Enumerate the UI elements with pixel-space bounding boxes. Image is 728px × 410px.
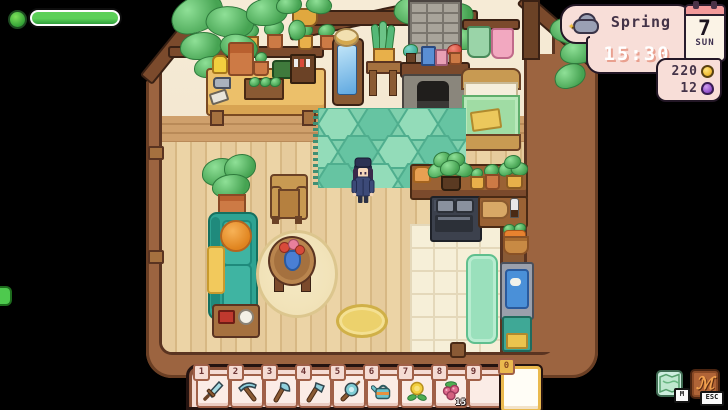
fishing-rod-icon <box>337 379 361 403</box>
slot-key-tab: 9 <box>465 364 482 381</box>
red-book <box>218 310 235 324</box>
book-on-bed <box>470 108 502 132</box>
gold-row: 220 <box>672 64 714 79</box>
calendar-pin <box>693 1 699 9</box>
stacked-clay-pots <box>228 42 254 76</box>
map-key-label: M <box>674 388 690 403</box>
slot-key-tab: 8 <box>431 364 448 381</box>
mantel-plant <box>403 44 417 62</box>
gold-amount: 220 <box>672 64 698 79</box>
slot-key-tab: 1 <box>193 364 210 381</box>
axe-icon <box>269 379 293 403</box>
watering-can-icon <box>371 379 395 403</box>
gold-coin-icon <box>701 65 714 78</box>
small-potted-plant <box>470 172 483 188</box>
calendar-header <box>686 6 724 16</box>
cutting-board <box>481 200 509 219</box>
weather-cloud-sparkle-icon: ✦ <box>570 11 598 35</box>
armchair <box>270 174 308 226</box>
pickaxe-icon <box>235 379 259 403</box>
bed <box>461 68 521 150</box>
kitchen-cabinet <box>502 316 532 352</box>
mantel-flower-pot <box>446 44 462 62</box>
slot-key-tab: 2 <box>227 364 244 381</box>
mint-runner-rug <box>466 254 498 344</box>
health-bar <box>28 8 122 28</box>
rug-fringe <box>313 110 318 186</box>
slot-key-tab: 4 <box>295 364 312 381</box>
calendar-pin <box>711 1 717 9</box>
produce-basket <box>502 226 528 256</box>
hoe-icon <box>303 379 327 403</box>
spice-rack <box>290 54 316 84</box>
hanging-dress-pink <box>491 28 514 59</box>
hanging-pot-plant <box>276 0 328 40</box>
kitchen-knife <box>510 198 519 218</box>
essence-amount: 12 <box>680 81 698 96</box>
potted-fern <box>498 158 528 194</box>
potted-tree <box>202 152 258 220</box>
straw-hat <box>334 28 359 47</box>
season-label: Spring <box>598 13 684 31</box>
health-bar-fill <box>32 12 118 24</box>
small-potted-plant <box>484 168 499 188</box>
calendar-day: 7 <box>686 16 724 40</box>
standing-mirror <box>332 38 364 106</box>
sink <box>500 262 534 320</box>
picture-frame-blue <box>421 46 436 66</box>
duck-figurine <box>212 55 228 74</box>
essence-row: 12 <box>680 81 714 96</box>
calendar-weekday: SUN <box>686 38 724 48</box>
item-count: 15 <box>455 398 466 408</box>
trowel <box>213 77 231 89</box>
side-table <box>212 304 260 338</box>
potted-fern <box>427 154 471 194</box>
wall-peg <box>148 250 164 264</box>
plant-stand <box>364 24 400 98</box>
wallet-panel: 220 12 <box>656 58 722 102</box>
wall-knob <box>450 342 466 358</box>
edge-notification-tab[interactable] <box>0 286 12 306</box>
slot-key-tab: 3 <box>261 364 278 381</box>
wall-beam-right <box>522 0 540 60</box>
health-face-icon <box>8 10 27 29</box>
coffee-mug <box>238 309 254 325</box>
seedling-pot <box>252 56 268 74</box>
player-character <box>349 156 377 208</box>
yellow-door-mat <box>336 304 388 338</box>
round-cushion <box>220 220 252 252</box>
panel-patch <box>590 32 684 42</box>
slot-key-tab: 7 <box>397 364 414 381</box>
yellow-flower-icon <box>405 379 429 403</box>
table-leg <box>210 110 224 126</box>
seed-crate <box>244 78 284 100</box>
wall-peg <box>148 146 164 160</box>
essence-orb-icon <box>701 82 714 95</box>
calendar: 7 SUN <box>684 4 726 62</box>
menu-key-label: ESC <box>700 391 724 406</box>
hanging-dress-green <box>467 26 491 58</box>
stove <box>430 196 482 242</box>
round-table <box>268 236 316 294</box>
game-screen: ✦ Spring 15:30 7 SUN 220 12 1 2 <box>0 0 728 410</box>
sword-icon <box>201 379 225 403</box>
slot-key-tab-selected: 0 <box>498 358 515 375</box>
slot-key-tab: 6 <box>363 364 380 381</box>
throw-blanket <box>207 246 225 294</box>
slot-key-tab: 5 <box>329 364 346 381</box>
